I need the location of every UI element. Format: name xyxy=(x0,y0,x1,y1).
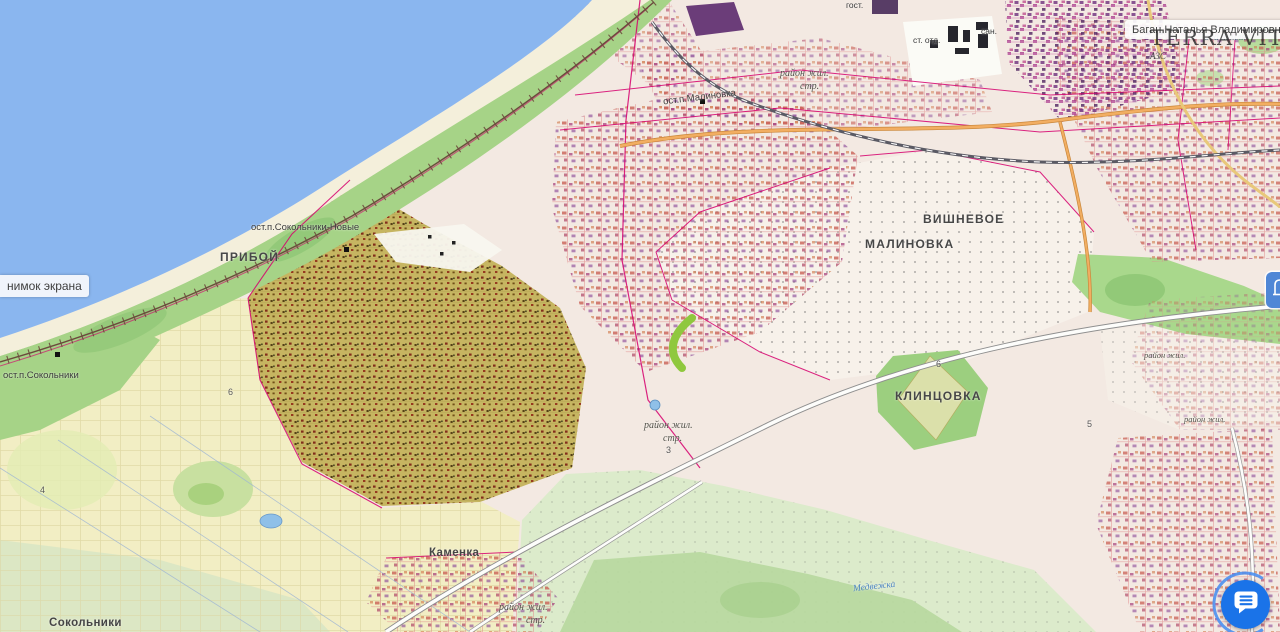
screenshot-notification: нимок экрана xyxy=(0,275,89,297)
terrain-layer xyxy=(0,0,1280,632)
map-viewport[interactable]: ПРИБОЙ МАЛИНОВКА ВИШНЕВОЕ КЛИНЦОВКА Каме… xyxy=(0,0,1280,632)
building-icon xyxy=(1272,277,1280,304)
building-poi-marker[interactable] xyxy=(1266,272,1280,308)
parcel-owner-text: Баган Наталья Владимировна xyxy=(1132,24,1280,36)
chat-bubble-icon xyxy=(1233,590,1259,619)
map-canvas[interactable] xyxy=(0,0,1280,632)
parcel-owner-tooltip: Баган Наталья Владимировна xyxy=(1125,20,1280,39)
chat-feedback-button[interactable] xyxy=(1221,580,1270,629)
screenshot-notification-text: нимок экрана xyxy=(7,279,82,293)
